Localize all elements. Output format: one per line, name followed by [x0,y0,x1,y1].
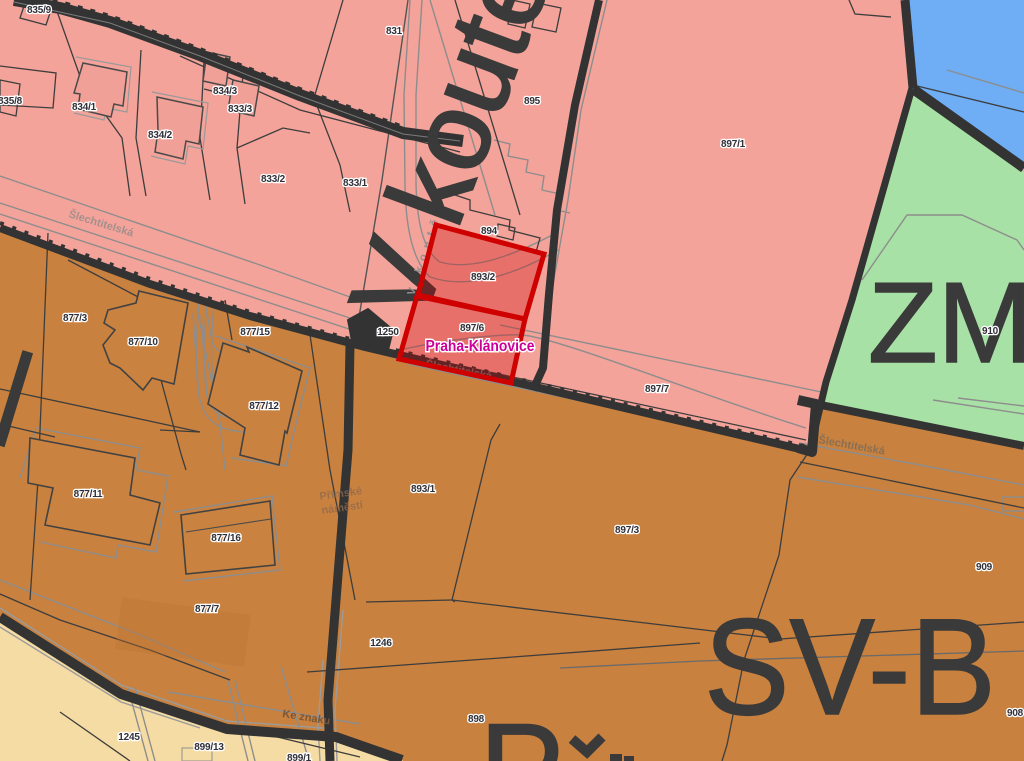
svg-text:899/13: 899/13 [194,742,224,753]
svg-text:835/9: 835/9 [27,5,52,16]
svg-text:877/10: 877/10 [128,337,158,348]
svg-text:833/2: 833/2 [261,174,286,185]
svg-text:877/12: 877/12 [249,401,279,412]
svg-text:894: 894 [481,226,498,237]
svg-text:1245: 1245 [118,732,140,743]
svg-text:877/7: 877/7 [195,604,220,615]
svg-text:908: 908 [1007,708,1024,719]
svg-text:897/7: 897/7 [645,384,670,395]
svg-text:877/16: 877/16 [211,533,241,544]
svg-text:898: 898 [468,714,485,725]
svg-text:SV-B: SV-B [704,591,996,744]
svg-text:895: 895 [524,96,541,107]
svg-text:910: 910 [982,326,999,337]
svg-text:897/3: 897/3 [615,525,640,536]
svg-text:P: P [479,698,564,761]
svg-text:831: 831 [386,26,403,37]
svg-text:909: 909 [976,562,993,573]
svg-text:1246: 1246 [370,638,392,649]
svg-text:834/1: 834/1 [72,102,97,113]
svg-text:1250: 1250 [377,327,399,338]
svg-text:893/1: 893/1 [411,484,436,495]
svg-text:893/2: 893/2 [471,272,496,283]
svg-text:899/1: 899/1 [287,753,312,761]
svg-text:877/11: 877/11 [74,489,103,500]
svg-text:833/1: 833/1 [343,178,368,189]
svg-text:897/6: 897/6 [460,323,485,334]
svg-text:834/3: 834/3 [213,86,238,97]
svg-text:877/3: 877/3 [63,313,88,324]
svg-text:834/2: 834/2 [148,130,173,141]
svg-text:ZM: ZM [868,260,1024,387]
svg-text:877/15: 877/15 [240,327,270,338]
svg-text:897/1: 897/1 [721,139,746,150]
svg-text:Praha-Klánovice: Praha-Klánovice [426,338,535,355]
svg-text:833/3: 833/3 [228,104,253,115]
svg-text:835/8: 835/8 [0,96,23,107]
